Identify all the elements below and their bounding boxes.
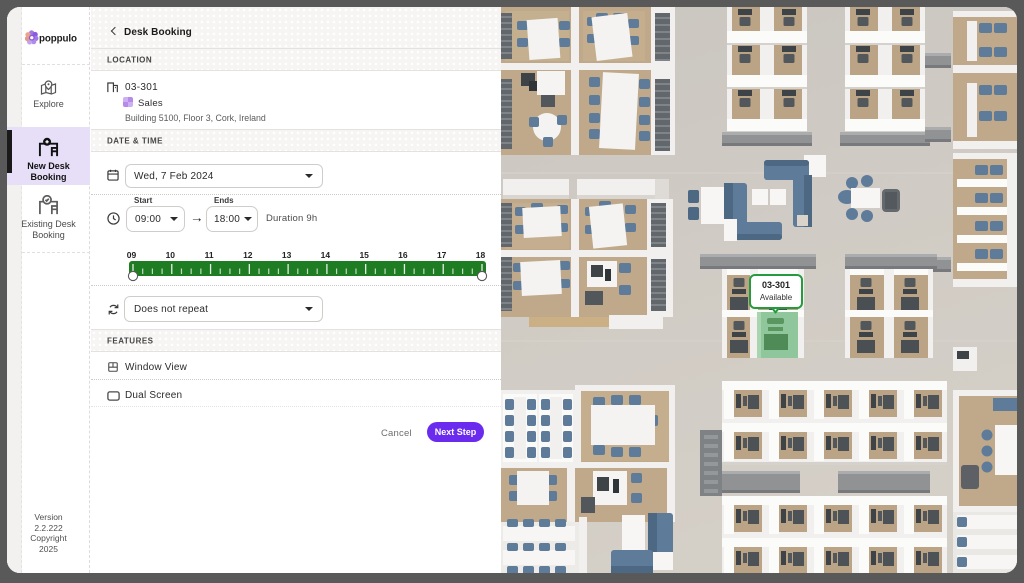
svg-text:14: 14 [321,250,331,260]
svg-text:03-301: 03-301 [762,280,790,290]
svg-text:17: 17 [437,250,447,260]
svg-text:15: 15 [359,250,369,260]
svg-text:12: 12 [243,250,253,260]
svg-text:16: 16 [398,250,408,260]
svg-text:13: 13 [282,250,292,260]
svg-text:10: 10 [166,250,176,260]
svg-text:poppulo: poppulo [39,33,77,44]
svg-text:11: 11 [205,250,214,260]
svg-text:18: 18 [476,250,486,260]
svg-text:09: 09 [127,250,137,260]
svg-text:Available: Available [760,293,793,302]
